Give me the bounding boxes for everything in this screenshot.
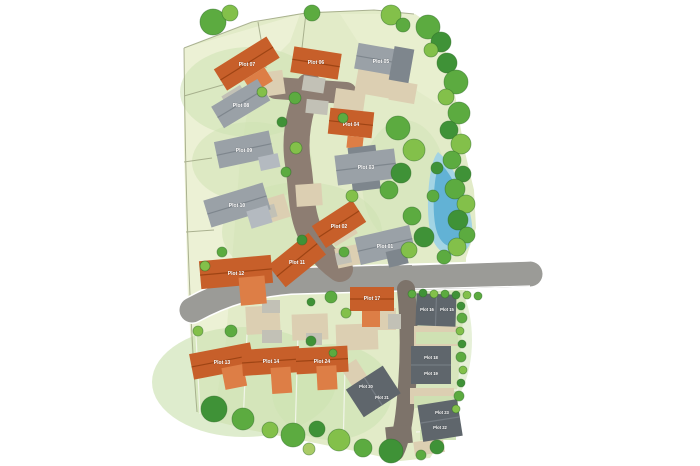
plot-07-label: Plot 07 [239, 62, 256, 68]
plot-21-label: Plot 21 [375, 395, 389, 400]
plot-23-label: Plot 23 [435, 410, 449, 415]
plot-06-label: Plot 06 [308, 60, 325, 66]
plot-02-label: Plot 02 [331, 224, 348, 230]
roof-wing [239, 276, 267, 306]
plot-20-label: Plot 20 [359, 384, 373, 389]
plot-01-label: Plot 01 [377, 244, 394, 250]
plot-17-label: Plot 17 [364, 296, 381, 302]
plot-18-19-house[interactable]: Plot 18 Plot 19 [411, 346, 451, 384]
plot-16-label: Plot 16 [420, 307, 434, 312]
plot-24-label: Plot 24 [314, 359, 331, 365]
site-plan-image: Plot 07 Plot 06 Plot 05 Plot 04 [0, 0, 700, 466]
plot-05-label: Plot 05 [373, 59, 390, 65]
plot-10-label: Plot 10 [229, 203, 246, 209]
plot-03-label: Plot 03 [358, 165, 375, 171]
plot-14-label: Plot 14 [263, 359, 280, 365]
plot-18-label: Plot 18 [424, 355, 438, 360]
plot-16-15-house[interactable]: Plot 16 Plot 15 [415, 293, 456, 326]
roof-wing [362, 311, 380, 327]
plot-04-label: Plot 04 [343, 122, 360, 128]
plot-08-label: Plot 08 [233, 103, 250, 109]
plot-22-label: Plot 22 [433, 425, 447, 430]
plot-15-label: Plot 15 [440, 307, 454, 312]
site-plan-canvas: Plot 07 Plot 06 Plot 05 Plot 04 [0, 0, 700, 466]
plot-11-label: Plot 11 [289, 260, 305, 266]
plot-13-label: Plot 13 [214, 360, 231, 366]
plot-12-label: Plot 12 [228, 271, 245, 277]
plot-19-label: Plot 19 [424, 371, 438, 376]
roof-wing [270, 367, 292, 394]
plot-09-label: Plot 09 [236, 148, 253, 154]
roof-wing [316, 365, 337, 390]
